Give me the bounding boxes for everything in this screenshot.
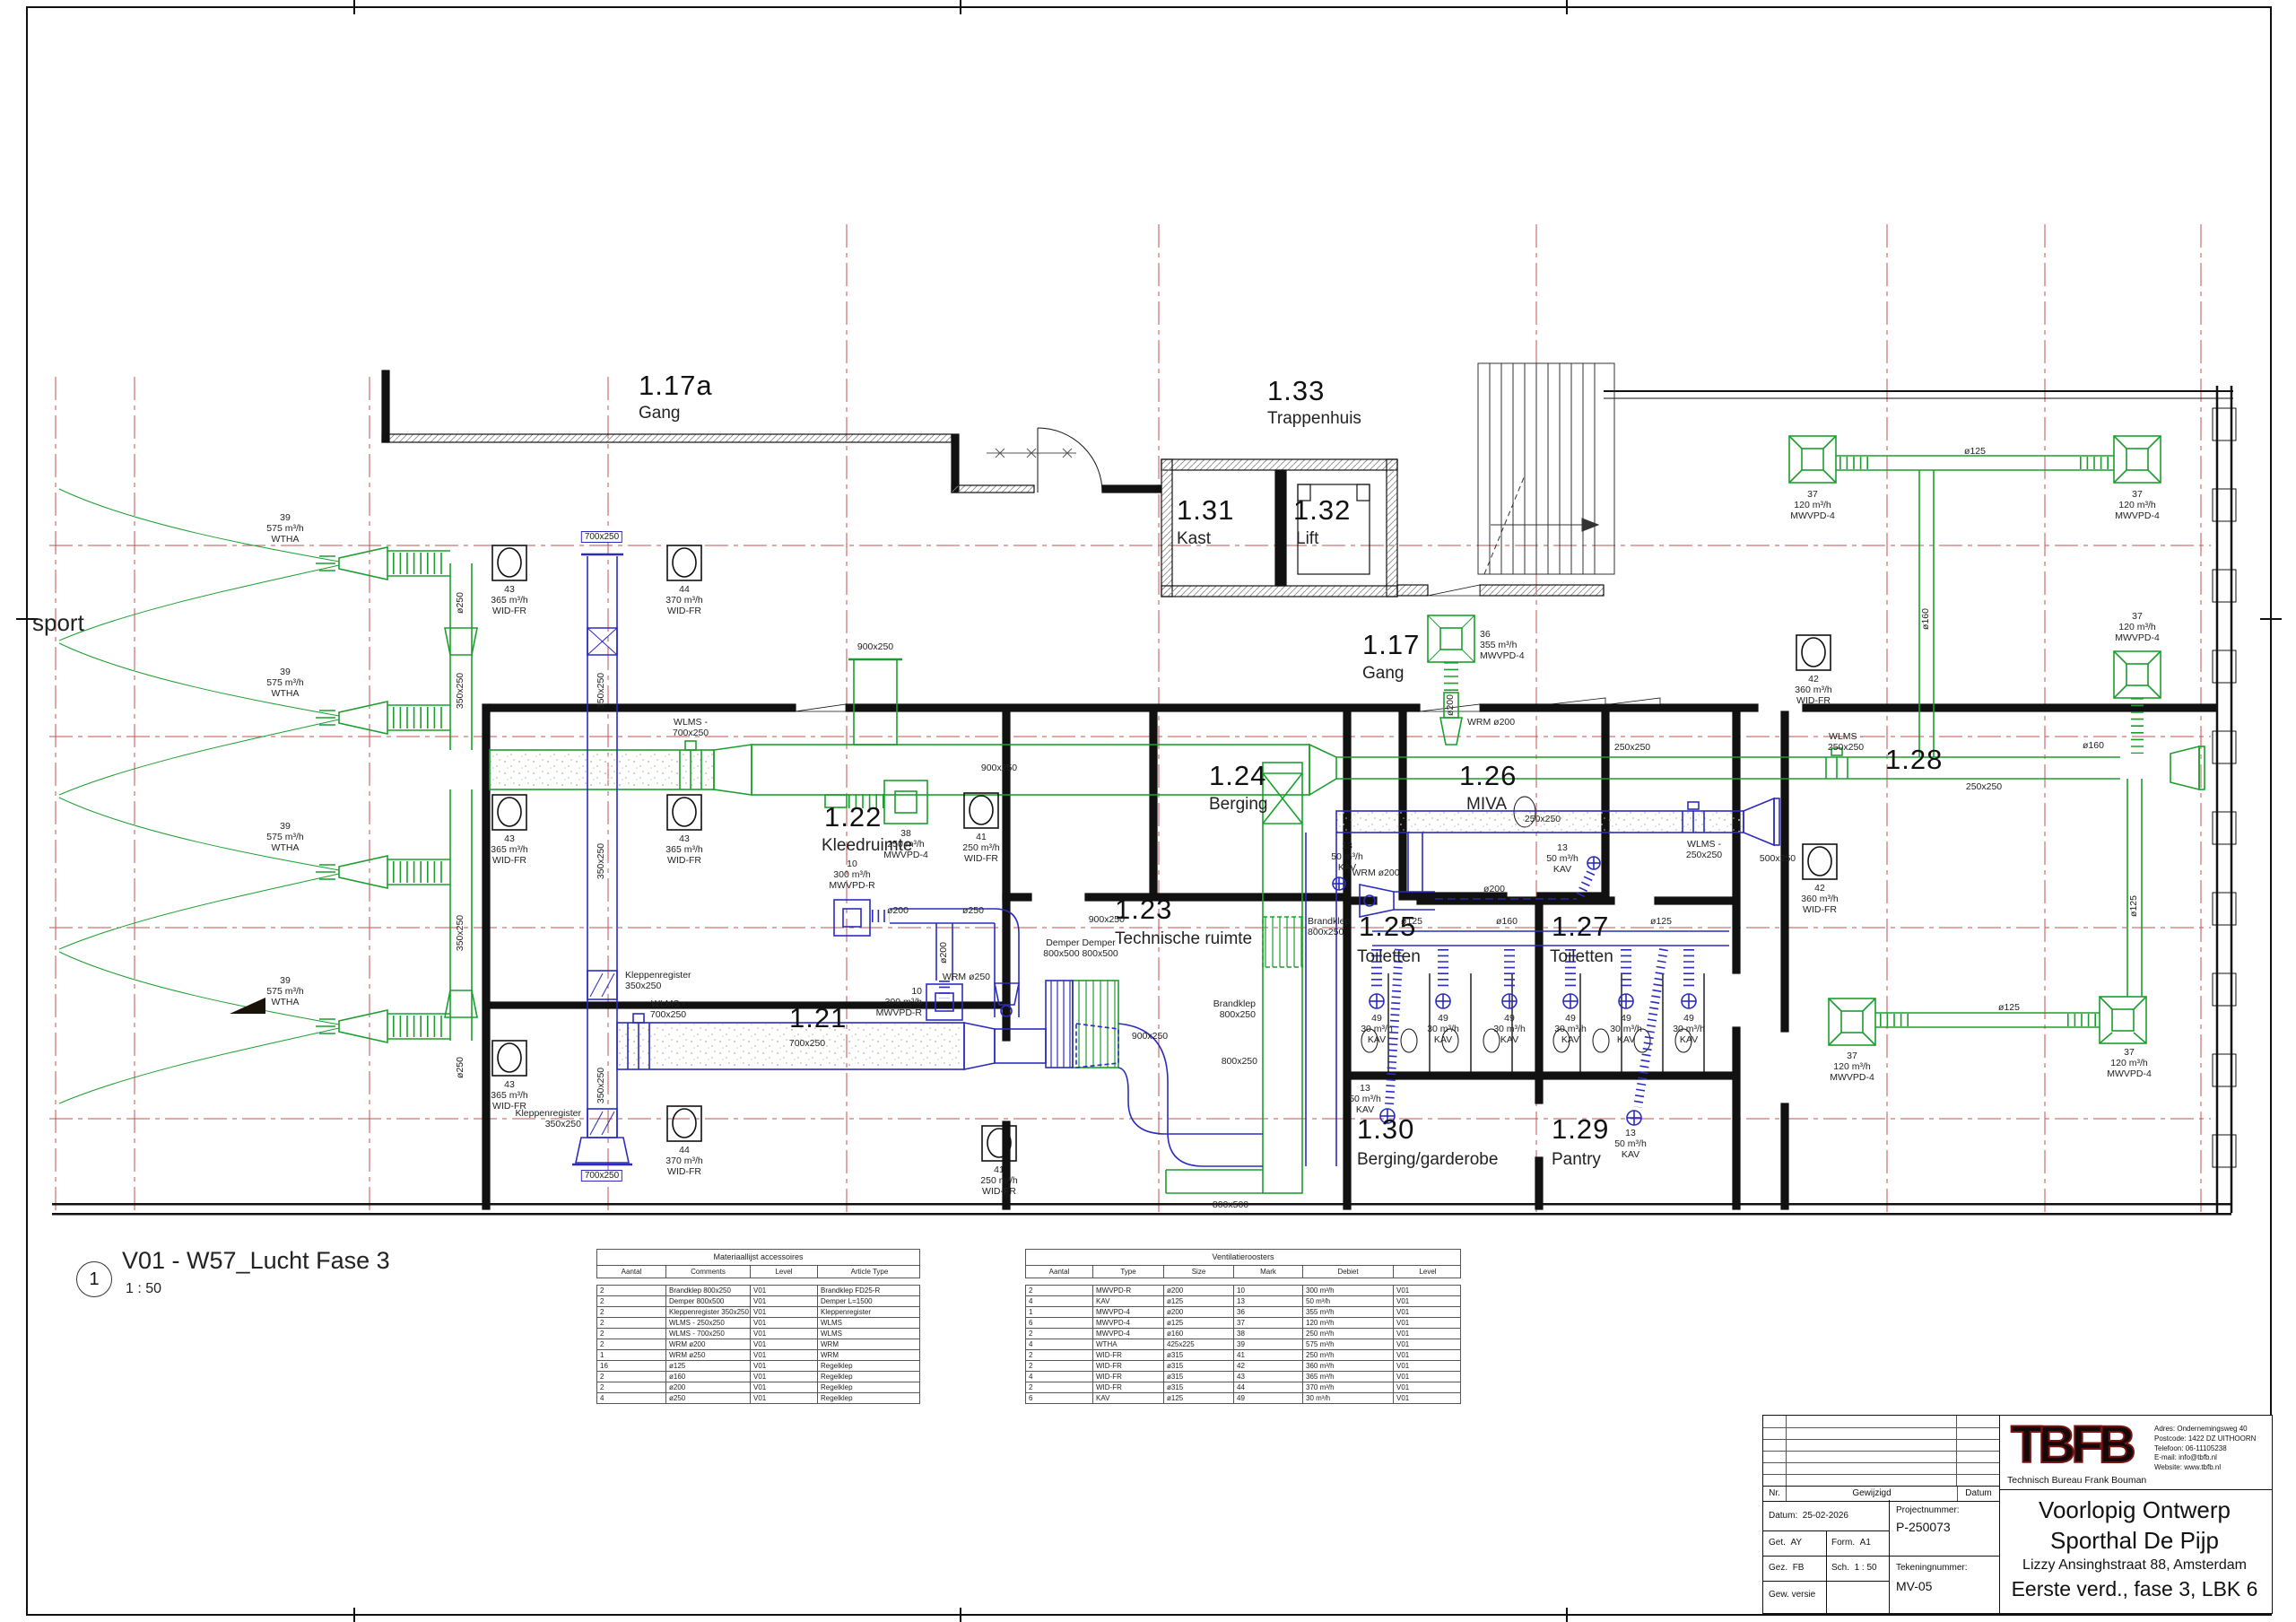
duct-label: ø125 (2129, 895, 2140, 917)
table-row: 4KAVø1251350 m³/hV01 (1026, 1296, 1460, 1307)
duct-label: 350x250 (456, 915, 466, 951)
materials-table-title: Materiaallijst accessoires (596, 1249, 920, 1265)
room-num-129: 1.29 (1552, 1114, 1609, 1146)
room-num-127: 1.27 (1552, 911, 1609, 943)
grille-label-13: 13 50 m³/h KAV (1349, 1084, 1381, 1115)
grilles-table-headers: Aantal Type Size Mark Debiet Level (1025, 1265, 1461, 1278)
duct-label: 350x250 (596, 673, 607, 709)
grille-label-37: 37 120 m³/h MWVPD-4 (2107, 1048, 2152, 1079)
grille-label-10: 10 300 m³/h MWVPD-R (876, 987, 922, 1018)
duct-label-wlms: WLMS - 700x250 (650, 999, 686, 1021)
grille-label-41: 41 250 m³/h WID-FR (980, 1165, 1017, 1197)
room-name-123: Technische ruimte (1115, 929, 1252, 948)
room-name-125: Toiletten (1357, 947, 1421, 966)
duct-label: ø125 (1998, 1003, 2020, 1014)
room-num-132: 1.32 (1293, 495, 1351, 527)
table-row: 1WRM ø250V01WRM (597, 1350, 919, 1361)
field-tekeningnummer-label: Tekeningnummer: (1896, 1563, 1967, 1573)
revision-header: Nr. Gewijzigd Datum (1763, 1486, 2000, 1502)
table-row: 2WID-FRø31542360 m³/hV01 (1026, 1361, 1460, 1372)
room-name-126: MIVA (1466, 795, 1507, 814)
duct-label: 350x250 (456, 673, 466, 709)
project-status: Voorlopig Ontwerp (1999, 1496, 2270, 1524)
table-row: 2WID-FRø31544370 m³/hV01 (1026, 1382, 1460, 1393)
supply-ducts (59, 436, 2205, 1193)
room-name-131: Kast (1177, 529, 1211, 548)
duct-label-wlms: WLMS - 250x250 (1686, 840, 1722, 861)
duct-label: ø250 (456, 1057, 466, 1078)
duct-label: 700x250 (789, 1039, 825, 1050)
company-name: Technisch Bureau Frank Bouman (2007, 1475, 2146, 1486)
view-number-bubble: 1 (76, 1261, 112, 1297)
duct-label: ø250 (962, 906, 984, 917)
grille-label-wtha: 39 575 m³/h WTHA (266, 667, 303, 699)
field-gew: Gew. versie (1769, 1590, 1815, 1600)
field-sch: Sch. 1 : 50 (1831, 1563, 1877, 1573)
room-name-124: Berging (1209, 795, 1268, 814)
project-address: Lizzy Ansinghstraat 88, Amsterdam (1999, 1557, 2270, 1574)
room-num-117a: 1.17a (639, 371, 713, 402)
grille-label-wtha: 39 575 m³/h WTHA (266, 822, 303, 853)
sheet-title: Eerste verd., fase 3, LBK 6 (1999, 1577, 2270, 1601)
room-name-117: Gang (1362, 664, 1404, 683)
room-num-122: 1.22 (824, 802, 882, 833)
table-row: 4WTHA425x22539575 m³/hV01 (1026, 1339, 1460, 1350)
room-name-129: Pantry (1552, 1150, 1601, 1169)
table-row: 2WRM ø200V01WRM (597, 1339, 919, 1350)
duct-label: 250x250 (1525, 815, 1561, 825)
duct-label: 350x250 (596, 843, 607, 879)
grille-label-49: 49 30 m³/h KAV (1673, 1014, 1705, 1045)
room-name-127: Toiletten (1550, 947, 1613, 966)
view-scale: 1 : 50 (126, 1281, 161, 1297)
grille-label-13: 13 50 m³/h KAV (1614, 1129, 1647, 1160)
room-num-133: 1.33 (1267, 376, 1325, 407)
table-row: 2ø200V01Regelklep (597, 1382, 919, 1393)
field-datum: Datum: 25-02-2026 (1769, 1511, 1848, 1521)
grille-label-43: 43 365 m³/h WID-FR (491, 1080, 527, 1112)
duct-label: ø200 (1446, 694, 1457, 716)
duct-label: ø200 (1483, 885, 1505, 895)
duct-label-brandklep: Brandklep 800x250 (1213, 999, 1256, 1021)
grille-label-49: 49 30 m³/h KAV (1554, 1014, 1587, 1045)
duct-label: 250x250 (1966, 782, 2002, 793)
grille-label-37: 37 120 m³/h MWVPD-4 (1830, 1051, 1874, 1083)
grille-label-44: 44 370 m³/h WID-FR (665, 1146, 702, 1177)
grille-label-49: 49 30 m³/h KAV (1610, 1014, 1642, 1045)
field-projectnummer-label: Projectnummer: (1896, 1505, 1960, 1515)
grilles-table: Ventilatieroosters Aantal Type Size Mark… (1025, 1249, 1461, 1404)
table-row: 2WLMS - 700x250V01WLMS (597, 1329, 919, 1339)
room-name-117a: Gang (639, 404, 680, 423)
duct-label-wlms: WLMS - 250x250 (1828, 732, 1864, 754)
structural-grid (49, 224, 2211, 1216)
table-row: 2Demper 800x500V01Demper L=1500 (597, 1296, 919, 1307)
field-gez: Gez. FB (1769, 1563, 1804, 1573)
duct-label-brandklep: Brandklep 800x250 (1308, 917, 1350, 938)
view-title: V01 - W57_Lucht Fase 3 (122, 1247, 390, 1274)
room-name-130: Berging/garderobe (1357, 1150, 1498, 1169)
room-num-128: 1.28 (1885, 745, 1943, 776)
duct-label-wrm: WRM ø200 (1352, 868, 1399, 879)
room-num-130: 1.30 (1357, 1114, 1414, 1146)
table-row: 4ø250V01Regelklep (597, 1393, 919, 1404)
table-row: 6MWVPD-4ø12537120 m³/hV01 (1026, 1318, 1460, 1329)
table-row: 2Brandklep 800x250V01Brandklep FD25-R (597, 1286, 919, 1296)
company-logo: TBFB (2011, 1419, 2132, 1471)
table-row: 2Kleppenregister 350x250V01Kleppenregist… (597, 1307, 919, 1318)
table-row: 2WID-FRø31541250 m³/hV01 (1026, 1350, 1460, 1361)
materials-table-body: 2Brandklep 800x250V01Brandklep FD25-R2De… (596, 1285, 920, 1404)
duct-label-klep: Kleppenregister 350x250 (625, 971, 691, 992)
duct-label: ø125 (1964, 447, 1986, 458)
grille-label-43: 43 365 m³/h WID-FR (665, 834, 702, 866)
room-num-131: 1.31 (1177, 495, 1234, 527)
table-row: 6KAVø1254930 m³/hV01 (1026, 1393, 1460, 1404)
grille-label-49: 49 30 m³/h KAV (1361, 1014, 1393, 1045)
walls (52, 371, 2236, 1216)
duct-label: 800x250 (1222, 1057, 1257, 1068)
materials-table: Materiaallijst accessoires Aantal Commen… (596, 1249, 920, 1404)
duct-label-wrm: WRM ø200 (1467, 718, 1515, 728)
field-projectnummer: P-250073 (1896, 1520, 1951, 1534)
duct-label: ø200 (887, 906, 909, 917)
grille-label-10: 10 300 m³/h MWVPD-R (829, 859, 874, 891)
duct-label: 900x250 (981, 763, 1017, 774)
grille-label-43: 43 365 m³/h WID-FR (491, 585, 527, 616)
grilles-table-title: Ventilatieroosters (1025, 1249, 1461, 1265)
duct-label: 700x250 (581, 531, 622, 543)
duct-label: 500x250 (1760, 854, 1796, 865)
grille-label-36: 36 355 m³/h MWVPD-4 (1480, 630, 1525, 661)
duct-label: 900x250 (1089, 915, 1125, 926)
grille-label-wtha: 39 575 m³/h WTHA (266, 513, 303, 545)
duct-label: ø125 (1650, 917, 1672, 928)
table-row: 2MWVPD-4ø16038250 m³/hV01 (1026, 1329, 1460, 1339)
grilles-table-body: 2MWVPD-Rø20010300 m³/hV014KAVø1251350 m³… (1025, 1285, 1461, 1404)
room-name-133: Trappenhuis (1267, 409, 1361, 428)
table-row: 4WID-FRø31543365 m³/hV01 (1026, 1372, 1460, 1382)
misc-symbols (230, 449, 1076, 1014)
hall-label: sport (32, 610, 84, 636)
duct-label: 800x500 (1213, 1200, 1248, 1211)
drawing-sheet: { "view_title": { "number": "1", "name":… (0, 0, 2296, 1622)
duct-label: ø160 (2083, 741, 2104, 752)
duct-label-klep: Kleppenregister 350x250 (515, 1109, 581, 1130)
project-name: Sporthal De Pijp (1999, 1527, 2270, 1555)
grille-label-38: 38 250 m³/h MWVPD-4 (883, 829, 928, 860)
duct-label: ø160 (1921, 608, 1932, 630)
grille-label-42: 42 360 m³/h WID-FR (1795, 675, 1831, 706)
duct-label: ø250 (456, 592, 466, 614)
duct-label: 700x250 (581, 1170, 622, 1182)
duct-label: 900x250 (1132, 1032, 1168, 1042)
duct-label-wrm: WRM ø250 (943, 972, 990, 983)
grille-label-43: 43 365 m³/h WID-FR (491, 834, 527, 866)
company-address: Adres: Ondernemingsweg 40 Postcode: 1422… (2154, 1425, 2256, 1473)
room-num-124: 1.24 (1209, 761, 1266, 792)
grille-label-37: 37 120 m³/h MWVPD-4 (2115, 490, 2160, 521)
room-num-117: 1.17 (1362, 630, 1420, 661)
grille-label-49: 49 30 m³/h KAV (1427, 1014, 1459, 1045)
room-name-132: Lift (1296, 529, 1318, 548)
table-row: 16ø125V01Regelklep (597, 1361, 919, 1372)
field-form: Form. A1 (1831, 1538, 1871, 1548)
grille-label-49: 49 30 m³/h KAV (1493, 1014, 1526, 1045)
grille-label-wtha: 39 575 m³/h WTHA (266, 976, 303, 1007)
table-row: 1MWVPD-4ø20036355 m³/hV01 (1026, 1307, 1460, 1318)
grille-label-41: 41 250 m³/h WID-FR (962, 833, 999, 864)
table-row: 2WLMS - 250x250V01WLMS (597, 1318, 919, 1329)
grille-label-37: 37 120 m³/h MWVPD-4 (2115, 612, 2160, 643)
field-get: Get. AY (1769, 1538, 1802, 1548)
duct-label-wlms: WLMS - 700x250 (673, 718, 709, 739)
room-num-126: 1.26 (1459, 761, 1517, 792)
grille-label-44: 44 370 m³/h WID-FR (665, 585, 702, 616)
duct-label-demper: Demper Demper 800x500 800x500 (1043, 938, 1118, 960)
grille-label-13: 13 50 m³/h KAV (1546, 843, 1578, 875)
duct-label: 350x250 (596, 1068, 607, 1103)
duct-label: ø160 (1496, 917, 1518, 928)
duct-label: ø200 (939, 942, 950, 964)
duct-label: 250x250 (1614, 743, 1650, 754)
grille-label-42: 42 360 m³/h WID-FR (1801, 884, 1838, 915)
duct-label: 900x250 (857, 642, 893, 653)
duct-label: ø125 (1401, 917, 1422, 928)
materials-table-headers: Aantal Comments Level Article Type (596, 1265, 920, 1278)
staircase (1478, 363, 1614, 574)
table-row: 2ø160V01Regelklep (597, 1372, 919, 1382)
title-block: Nr. Gewijzigd Datum Datum: 25-02-2026 Ge… (1762, 1415, 2273, 1614)
room-num-121: 1.21 (789, 1003, 847, 1034)
table-row: 2MWVPD-Rø20010300 m³/hV01 (1026, 1286, 1460, 1296)
grille-label-37: 37 120 m³/h MWVPD-4 (1790, 490, 1835, 521)
field-tekeningnummer: MV-05 (1896, 1579, 1932, 1593)
